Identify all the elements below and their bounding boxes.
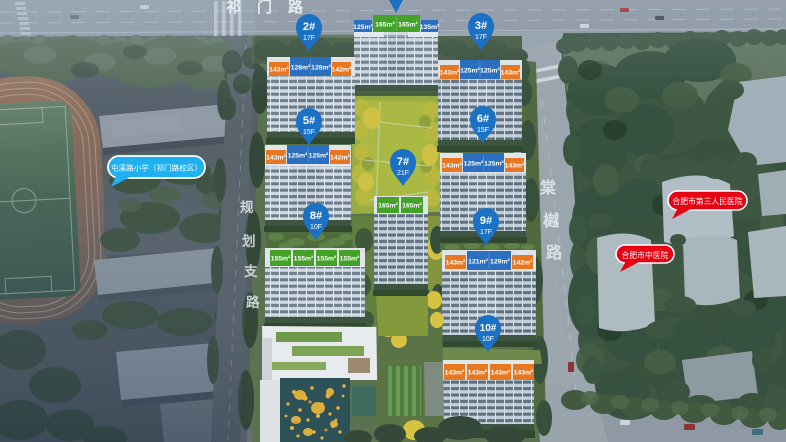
svg-text:143m²: 143m² bbox=[514, 370, 534, 377]
svg-text:143m²: 143m² bbox=[446, 260, 466, 267]
svg-text:143m²: 143m² bbox=[468, 370, 488, 377]
svg-text:2#: 2# bbox=[303, 21, 315, 33]
svg-text:142m²: 142m² bbox=[332, 67, 352, 74]
svg-text:3#: 3# bbox=[475, 20, 487, 32]
svg-text:屯溪路小学（祁门路校区）: 屯溪路小学（祁门路校区） bbox=[111, 163, 202, 173]
svg-text:10F: 10F bbox=[310, 224, 322, 231]
svg-text:142m²: 142m² bbox=[330, 155, 350, 162]
svg-text:143m²: 143m² bbox=[491, 370, 511, 377]
svg-text:143m²: 143m² bbox=[266, 155, 286, 162]
svg-text:支: 支 bbox=[243, 263, 258, 279]
svg-text:合肥市中医院: 合肥市中医院 bbox=[622, 250, 669, 260]
svg-text:125m²: 125m² bbox=[309, 153, 329, 160]
svg-text:128m²: 128m² bbox=[291, 65, 311, 72]
svg-text:125m²: 125m² bbox=[460, 68, 480, 75]
svg-text:祁门路: 祁门路 bbox=[226, 0, 319, 16]
svg-text:121m²: 121m² bbox=[468, 259, 488, 266]
svg-text:165m²: 165m² bbox=[398, 22, 418, 29]
svg-text:155m²: 155m² bbox=[317, 256, 337, 263]
svg-text:125m²: 125m² bbox=[464, 161, 484, 168]
svg-text:合肥市第三人民医院: 合肥市第三人民医院 bbox=[672, 196, 742, 206]
svg-text:21F: 21F bbox=[397, 170, 409, 177]
svg-text:8#: 8# bbox=[310, 210, 322, 222]
svg-text:5#: 5# bbox=[303, 115, 315, 127]
svg-text:143m²: 143m² bbox=[269, 67, 289, 74]
svg-text:棠: 棠 bbox=[539, 178, 557, 197]
svg-text:143m²: 143m² bbox=[505, 163, 525, 170]
svg-text:135m²: 135m² bbox=[420, 24, 440, 31]
svg-text:17F: 17F bbox=[475, 34, 487, 41]
svg-text:129m²: 129m² bbox=[490, 259, 510, 266]
svg-text:125m²: 125m² bbox=[484, 161, 504, 168]
svg-text:155m²: 155m² bbox=[340, 256, 360, 263]
svg-text:17F: 17F bbox=[480, 229, 492, 236]
svg-text:142m²: 142m² bbox=[513, 260, 533, 267]
svg-text:7#: 7# bbox=[397, 156, 409, 168]
svg-text:10#: 10# bbox=[480, 323, 497, 334]
svg-text:143m²: 143m² bbox=[442, 163, 462, 170]
svg-text:165m²: 165m² bbox=[375, 22, 395, 29]
svg-text:125m²: 125m² bbox=[288, 153, 308, 160]
svg-text:143m²: 143m² bbox=[445, 370, 465, 377]
svg-text:128m²: 128m² bbox=[311, 65, 331, 72]
svg-text:165m²: 165m² bbox=[378, 203, 398, 210]
svg-text:规: 规 bbox=[240, 200, 254, 215]
svg-text:143m²: 143m² bbox=[501, 70, 521, 77]
svg-text:15F: 15F bbox=[303, 129, 315, 136]
svg-text:路: 路 bbox=[546, 243, 563, 262]
svg-text:划: 划 bbox=[242, 233, 256, 249]
svg-text:155m²: 155m² bbox=[271, 256, 291, 263]
svg-text:10F: 10F bbox=[482, 336, 494, 343]
svg-text:路: 路 bbox=[246, 294, 260, 310]
svg-text:125m²: 125m² bbox=[480, 68, 500, 75]
svg-text:155m²: 155m² bbox=[294, 256, 314, 263]
svg-text:17F: 17F bbox=[303, 35, 315, 42]
svg-text:6#: 6# bbox=[477, 113, 489, 125]
svg-text:143m²: 143m² bbox=[440, 70, 460, 77]
svg-text:樾: 樾 bbox=[543, 211, 560, 230]
svg-text:165m²: 165m² bbox=[402, 203, 422, 210]
svg-text:15F: 15F bbox=[477, 127, 489, 134]
svg-text:125m²: 125m² bbox=[353, 24, 373, 31]
svg-text:9#: 9# bbox=[480, 215, 492, 227]
